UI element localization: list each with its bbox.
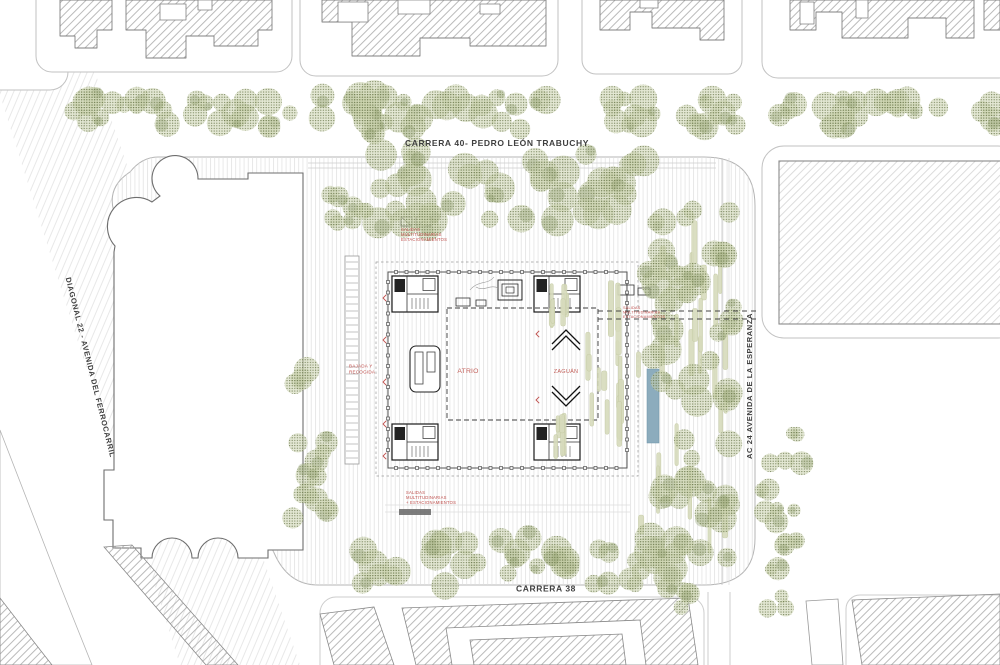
tree-canopy xyxy=(673,534,695,556)
tree-canopy xyxy=(359,203,374,218)
tree-canopy-shade xyxy=(789,507,796,514)
grass-strip xyxy=(554,434,558,458)
tree-canopy-shade xyxy=(657,549,666,558)
column-marker xyxy=(626,291,629,294)
tree-canopy-shade xyxy=(778,544,788,554)
tree-canopy xyxy=(674,429,695,450)
building-footprint xyxy=(806,599,843,665)
column-marker xyxy=(552,271,555,274)
tree-canopy xyxy=(370,179,390,199)
tree-canopy xyxy=(715,430,742,457)
tree-canopy xyxy=(324,209,341,226)
grass-strip xyxy=(602,371,607,391)
tree-canopy xyxy=(406,187,437,218)
column-marker xyxy=(584,467,587,470)
tree-canopy xyxy=(758,599,776,617)
column-marker xyxy=(626,333,629,336)
column-marker xyxy=(615,271,618,274)
column-marker xyxy=(626,386,629,389)
tree-canopy-shade xyxy=(597,576,609,588)
tree-canopy-shade xyxy=(403,125,416,138)
column-marker xyxy=(387,386,390,389)
tree-canopy-shade xyxy=(801,457,813,469)
column-marker xyxy=(395,271,398,274)
column-marker xyxy=(626,354,629,357)
column-marker xyxy=(531,467,534,470)
column-marker xyxy=(437,467,440,470)
tree-canopy xyxy=(719,202,740,223)
tree-canopy xyxy=(765,563,777,575)
tree-canopy-shade xyxy=(150,97,163,110)
tree-canopy xyxy=(678,364,710,396)
column-marker xyxy=(387,396,390,399)
grass-strip xyxy=(590,393,594,427)
tree-canopy-shade xyxy=(519,208,533,222)
grass-strip xyxy=(608,281,613,337)
column-marker xyxy=(626,407,629,410)
column-marker xyxy=(563,271,566,274)
column-marker xyxy=(458,467,461,470)
courtyard xyxy=(856,0,868,18)
tree-canopy-shade xyxy=(722,389,736,403)
column-marker xyxy=(426,467,429,470)
tree-canopy-shade xyxy=(365,129,376,140)
tree-canopy-shade xyxy=(847,98,857,108)
courtyard xyxy=(640,0,658,8)
column-marker xyxy=(626,344,629,347)
grass-strip xyxy=(597,367,600,391)
grass-strip xyxy=(692,221,697,264)
column-marker xyxy=(626,365,629,368)
column-marker xyxy=(615,467,618,470)
column-marker xyxy=(479,467,482,470)
column-marker xyxy=(468,467,471,470)
column-marker xyxy=(479,271,482,274)
tree-canopy xyxy=(422,90,451,119)
street-label-south: CARRERA 38 xyxy=(516,584,576,594)
column-marker xyxy=(552,467,555,470)
grass-strip xyxy=(605,399,609,434)
building-footprint xyxy=(320,607,394,665)
tree-canopy xyxy=(481,210,498,227)
tree-canopy xyxy=(288,433,307,452)
tree-canopy xyxy=(683,450,700,467)
tree-canopy xyxy=(468,554,486,572)
tree-canopy-shade xyxy=(337,195,347,205)
courtyard xyxy=(398,0,430,14)
column-marker xyxy=(573,467,576,470)
tree-canopy xyxy=(282,105,297,120)
column-marker xyxy=(489,271,492,274)
tree-canopy xyxy=(775,589,789,603)
tree-canopy-shade xyxy=(608,543,618,553)
column-marker xyxy=(387,449,390,452)
tree-canopy-shade xyxy=(695,512,709,526)
tree-canopy-shade xyxy=(530,97,541,108)
tree-canopy xyxy=(622,152,646,176)
tree-canopy-shade xyxy=(400,98,408,106)
tree-canopy xyxy=(649,208,676,235)
grass-strip xyxy=(636,352,640,378)
courtyard xyxy=(338,2,368,22)
tree-canopy xyxy=(648,238,675,265)
column-marker xyxy=(437,271,440,274)
tree-canopy-shade xyxy=(773,515,785,527)
tree-canopy-shade xyxy=(360,577,371,588)
courtyard xyxy=(800,2,814,24)
grass-strip xyxy=(556,416,559,433)
tree-canopy-shade xyxy=(683,271,692,280)
column-marker xyxy=(489,467,492,470)
building-footprint xyxy=(984,0,1000,30)
tree-canopy xyxy=(431,572,458,599)
tree-canopy xyxy=(603,100,620,117)
tree-canopy xyxy=(385,201,406,222)
column-marker xyxy=(531,271,534,274)
tree-canopy xyxy=(530,170,552,192)
grass-strip xyxy=(616,308,621,355)
tree-canopy-shade xyxy=(531,565,539,573)
tree-canopy xyxy=(510,119,530,139)
tree-canopy xyxy=(492,112,512,132)
tree-canopy-shade xyxy=(841,122,855,136)
tree-canopy xyxy=(776,452,794,470)
tree-canopy xyxy=(627,552,645,570)
column-marker xyxy=(626,323,629,326)
stair-core-sw xyxy=(392,424,438,460)
tree-canopy xyxy=(293,485,311,503)
tree-canopy-shade xyxy=(727,299,735,307)
tree-canopy-shade xyxy=(523,526,536,539)
column-marker xyxy=(626,281,629,284)
tree-canopy-shade xyxy=(723,552,733,562)
east-city-block xyxy=(762,146,1000,338)
column-marker xyxy=(626,302,629,305)
tree-canopy xyxy=(929,98,948,117)
tree-canopy xyxy=(788,532,805,549)
tree-canopy xyxy=(365,139,397,171)
column-marker xyxy=(510,271,513,274)
tree-canopy xyxy=(676,105,698,127)
column-marker xyxy=(387,354,390,357)
tree-canopy xyxy=(291,368,313,390)
tree-canopy-shade xyxy=(988,117,1000,129)
annotation-text: SALIDAS xyxy=(623,306,641,310)
column-marker xyxy=(387,365,390,368)
tree-canopy xyxy=(573,198,601,226)
tree-canopy-shade xyxy=(308,469,318,479)
tree-canopy-shade xyxy=(94,117,103,126)
grass-strip xyxy=(587,354,592,371)
tree-canopy xyxy=(500,565,517,582)
tree-canopy-shade xyxy=(691,273,704,286)
tree-canopy-shade xyxy=(776,560,788,572)
tree-canopy xyxy=(435,527,462,554)
grass-strip xyxy=(699,298,703,352)
tree-canopy-shade xyxy=(771,111,782,122)
annotation-text: MULTITUDINARIAS xyxy=(623,311,660,315)
tree-canopy xyxy=(786,427,799,440)
tree-canopy xyxy=(474,160,499,185)
annotation-text: ESTACIONAMIENTOS xyxy=(401,237,447,242)
tree-canopy-shade xyxy=(374,219,390,235)
site-plan-drawing: CARRERA 40- PEDRO LEÓN TRABUCHY CARRERA … xyxy=(0,0,1000,665)
column-marker xyxy=(405,467,408,470)
north-city-blocks xyxy=(36,0,1000,78)
column-marker xyxy=(626,449,629,452)
tree-canopy-shade xyxy=(550,187,565,202)
tree-canopy-shade xyxy=(411,152,426,167)
tree-canopy-shade xyxy=(233,120,241,128)
tree-canopy-shade xyxy=(190,95,200,105)
column-marker xyxy=(387,428,390,431)
tree-canopy xyxy=(683,201,702,220)
space-label-atrium: ATRIO xyxy=(457,368,478,375)
annotation-dropoff: BAJADA Y RECOGIDA xyxy=(349,364,376,375)
tree-canopy xyxy=(698,86,727,115)
tree-canopy xyxy=(234,89,258,113)
tree-canopy xyxy=(674,466,701,493)
tree-canopy-shade xyxy=(693,543,706,556)
column-marker xyxy=(447,467,450,470)
courtyard xyxy=(480,4,500,14)
column-marker xyxy=(387,417,390,420)
tree-canopy xyxy=(322,501,337,516)
courtyard xyxy=(160,4,186,20)
tree-canopy-shade xyxy=(661,373,672,384)
column-marker xyxy=(387,302,390,305)
annotation-text: + ESTACIONAMIENTOS xyxy=(406,500,456,505)
annotation-text: RECOGIDA xyxy=(349,370,376,375)
column-marker xyxy=(416,271,419,274)
column-marker xyxy=(405,271,408,274)
reception-counter xyxy=(410,346,440,392)
tree-canopy-shade xyxy=(321,431,332,442)
tree-canopy xyxy=(282,507,303,528)
column-marker xyxy=(447,271,450,274)
grass-strip xyxy=(551,299,555,324)
column-marker xyxy=(584,271,587,274)
tree-canopy xyxy=(721,314,742,335)
grass-strip xyxy=(692,308,697,341)
column-marker xyxy=(626,417,629,420)
column-marker xyxy=(542,467,545,470)
column-marker xyxy=(500,271,503,274)
column-marker xyxy=(387,344,390,347)
column-marker xyxy=(510,467,513,470)
tree-canopy xyxy=(650,334,682,366)
column-marker xyxy=(387,312,390,315)
grass-strip xyxy=(560,414,565,432)
tree-canopy xyxy=(701,351,720,370)
column-marker xyxy=(387,438,390,441)
column-marker xyxy=(468,271,471,274)
tree-canopy-shade xyxy=(544,551,560,567)
building-footprint xyxy=(852,594,1000,665)
annotation-text: BAJADA Y xyxy=(349,364,372,369)
tree-canopy xyxy=(452,93,481,122)
column-marker xyxy=(500,467,503,470)
street-label-east: AC 24 AVENIDA DE LA ESPERANZA xyxy=(745,313,754,459)
column-marker xyxy=(626,375,629,378)
tree-canopy-shade xyxy=(648,108,656,116)
building-footprint xyxy=(779,161,1000,324)
column-marker xyxy=(521,271,524,274)
column-marker xyxy=(626,428,629,431)
column-marker xyxy=(605,271,608,274)
column-marker xyxy=(594,467,597,470)
column-marker xyxy=(387,407,390,410)
column-marker xyxy=(594,271,597,274)
column-marker xyxy=(387,281,390,284)
street-label-north: CARRERA 40- PEDRO LEÓN TRABUCHY xyxy=(405,137,589,148)
column-marker xyxy=(416,467,419,470)
tree-canopy-shade xyxy=(487,194,495,202)
tree-canopy-shade xyxy=(716,252,729,265)
column-marker xyxy=(563,467,566,470)
tree-canopy xyxy=(72,89,99,116)
column-marker xyxy=(521,467,524,470)
column-marker xyxy=(387,291,390,294)
column-marker xyxy=(387,375,390,378)
column-marker xyxy=(573,271,576,274)
tree-canopy-shade xyxy=(681,590,692,601)
column-marker xyxy=(626,438,629,441)
tree-canopy xyxy=(309,105,336,132)
column-marker xyxy=(387,323,390,326)
tree-canopy-shade xyxy=(345,216,354,225)
column-marker xyxy=(605,467,608,470)
tree-canopy xyxy=(886,89,909,112)
south-stair xyxy=(399,509,431,515)
tree-canopy-shade xyxy=(542,215,558,231)
tree-canopy xyxy=(624,104,647,127)
tree-canopy xyxy=(255,88,282,115)
column-marker xyxy=(542,271,545,274)
column-marker xyxy=(458,271,461,274)
tree-canopy xyxy=(708,111,722,125)
stair-core-ne xyxy=(534,276,580,312)
grass-strip xyxy=(617,401,622,446)
space-label-vestibule: ZAGUÁN xyxy=(554,368,579,375)
existing-building xyxy=(104,156,303,558)
column-marker xyxy=(387,333,390,336)
tree-canopy xyxy=(614,183,636,205)
annotation-text: ESTACIONAMIENTOS xyxy=(623,315,665,319)
tree-canopy-shade xyxy=(317,95,329,107)
tree-canopy xyxy=(352,102,376,126)
site-plan-canvas: CARRERA 40- PEDRO LEÓN TRABUCHY CARRERA … xyxy=(0,0,1000,665)
column-marker xyxy=(395,467,398,470)
tree-canopy-shade xyxy=(497,90,505,98)
stair-core-nw xyxy=(392,276,438,312)
tree-canopy-shade xyxy=(667,584,677,594)
tree-canopy xyxy=(258,115,279,136)
column-marker xyxy=(426,271,429,274)
south-city-blocks xyxy=(320,592,1000,665)
tree-canopy-shade xyxy=(155,119,168,132)
grass-strip xyxy=(561,299,566,326)
tree-canopy xyxy=(758,478,780,500)
courtyard xyxy=(198,0,212,10)
tree-canopy-shade xyxy=(491,535,503,547)
tree-canopy-shade xyxy=(441,199,454,212)
column-marker xyxy=(626,396,629,399)
